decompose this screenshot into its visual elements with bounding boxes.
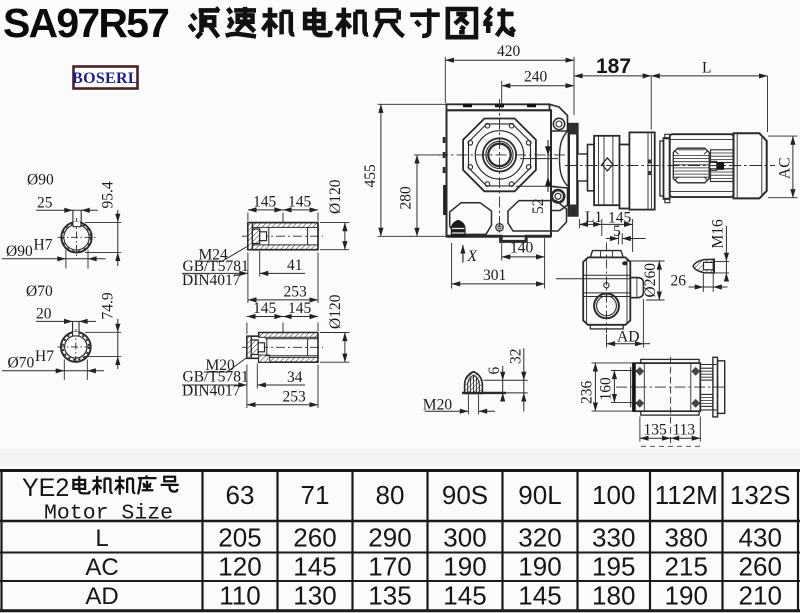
svg-text:5: 5: [613, 223, 621, 240]
svg-text:Ø90: Ø90: [6, 243, 33, 260]
svg-text:95.4: 95.4: [100, 181, 117, 208]
svg-text:34: 34: [287, 369, 303, 386]
svg-text:120: 120: [218, 552, 261, 582]
svg-text:63: 63: [226, 480, 255, 510]
svg-text:AC: AC: [777, 157, 794, 179]
svg-text:L1: L1: [585, 209, 602, 226]
svg-text:132S: 132S: [730, 480, 791, 510]
svg-text:215: 215: [665, 552, 708, 582]
svg-text:80: 80: [376, 480, 405, 510]
svg-text:90S: 90S: [442, 480, 488, 510]
svg-text:71: 71: [301, 480, 330, 510]
svg-text:130: 130: [293, 581, 336, 611]
svg-text:BOSERL: BOSERL: [72, 70, 139, 87]
svg-text:145: 145: [293, 552, 336, 582]
svg-text:DIN4017: DIN4017: [182, 272, 241, 289]
svg-text:32: 32: [508, 349, 525, 365]
svg-text:110: 110: [219, 581, 260, 611]
svg-text:L: L: [95, 525, 108, 552]
svg-text:145: 145: [253, 300, 277, 317]
svg-text:330: 330: [592, 523, 635, 553]
svg-text:Ø70: Ø70: [8, 355, 35, 372]
svg-text:M16: M16: [710, 219, 727, 249]
svg-text:290: 290: [368, 523, 411, 553]
svg-text:170: 170: [368, 552, 411, 582]
svg-text:Motor Size: Motor Size: [44, 502, 173, 526]
svg-text:Ø120: Ø120: [327, 179, 344, 214]
svg-text:455: 455: [362, 164, 379, 188]
svg-text:260: 260: [739, 552, 782, 582]
svg-text:160: 160: [598, 377, 615, 401]
svg-text:145: 145: [288, 194, 312, 211]
svg-text:145: 145: [288, 300, 312, 317]
svg-text:H7: H7: [34, 237, 53, 254]
svg-text:AD: AD: [617, 329, 639, 346]
svg-text:253: 253: [283, 389, 307, 406]
svg-text:100: 100: [592, 480, 635, 510]
svg-text:H7: H7: [35, 348, 54, 365]
svg-text:L: L: [702, 60, 711, 77]
svg-text:74.9: 74.9: [100, 292, 117, 319]
svg-text:113: 113: [673, 422, 696, 439]
svg-text:Ø120: Ø120: [327, 294, 344, 329]
svg-text:41: 41: [287, 257, 303, 274]
svg-text:240: 240: [524, 69, 548, 86]
svg-text:135: 135: [644, 422, 668, 439]
svg-text:300: 300: [443, 523, 486, 553]
svg-text:145: 145: [518, 581, 561, 611]
svg-text:190: 190: [518, 552, 561, 582]
svg-text:X: X: [467, 248, 478, 265]
svg-text:260: 260: [293, 523, 336, 553]
svg-text:26: 26: [671, 273, 687, 290]
svg-text:6: 6: [486, 367, 503, 375]
svg-text:280: 280: [398, 186, 415, 210]
svg-text:180: 180: [592, 581, 635, 611]
svg-text:380: 380: [665, 523, 708, 553]
svg-text:210: 210: [739, 581, 782, 611]
svg-text:135: 135: [368, 581, 411, 611]
svg-text:AC: AC: [85, 554, 118, 581]
svg-text:140: 140: [510, 240, 534, 257]
svg-text:145: 145: [253, 194, 277, 211]
svg-text:YE2: YE2: [22, 474, 69, 502]
svg-text:Ø260: Ø260: [642, 263, 659, 298]
svg-text:112M: 112M: [655, 480, 718, 510]
svg-text:Ø90: Ø90: [27, 172, 54, 189]
svg-text:253: 253: [284, 284, 308, 301]
svg-text:205: 205: [218, 523, 261, 553]
svg-text:52: 52: [530, 199, 547, 215]
svg-text:20: 20: [36, 306, 52, 323]
svg-text:195: 195: [592, 552, 635, 582]
svg-text:236: 236: [579, 381, 596, 405]
svg-text:SA97R57: SA97R57: [3, 0, 168, 46]
svg-text:420: 420: [497, 43, 521, 60]
svg-text:90L: 90L: [518, 480, 561, 510]
svg-text:25: 25: [37, 195, 53, 212]
svg-text:301: 301: [483, 267, 506, 284]
svg-text:187: 187: [596, 55, 631, 78]
svg-text:190: 190: [443, 552, 486, 582]
svg-text:Ø70: Ø70: [26, 283, 53, 300]
svg-text:145: 145: [443, 581, 486, 611]
svg-text:430: 430: [739, 523, 782, 553]
svg-text:320: 320: [518, 523, 561, 553]
svg-text:AD: AD: [85, 583, 118, 610]
svg-text:190: 190: [665, 581, 708, 611]
